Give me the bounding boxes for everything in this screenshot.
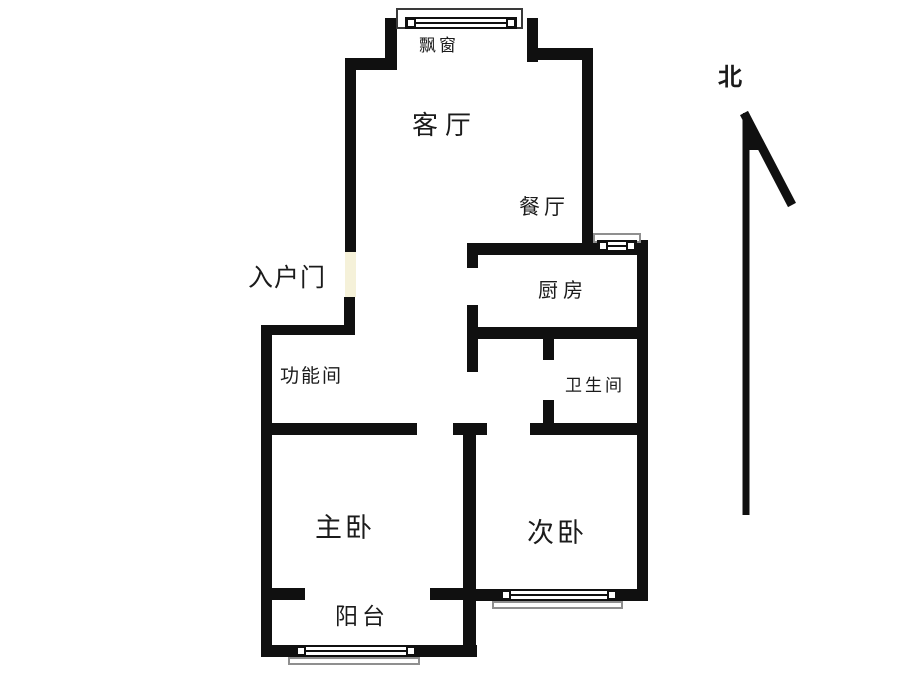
window-cap [501,590,511,600]
room-label-kitchen: 厨房 [538,281,588,301]
room-label-entrance-door: 入户门 [248,266,326,291]
wall [582,48,593,255]
room-label-bay-window: 飘窗 [419,37,459,54]
balcony-window-sill [288,657,420,665]
compass-north-label: 北 [718,66,742,90]
second-bedroom-window [500,589,618,601]
room-label-master-bedroom: 主卧 [315,515,375,542]
wall [637,240,648,601]
window-cap [406,646,416,656]
floor-plan: 飘窗 客厅 餐厅 入户门 厨房 功能间 卫生间 主卧 次卧 阳台 北 [0,0,900,675]
wall [543,339,554,360]
room-label-bathroom: 卫生间 [565,377,625,394]
window-cap [506,18,516,28]
window-cap [607,590,617,600]
wall [270,423,417,435]
balcony-window [295,645,417,657]
window-glass-line [502,594,616,596]
wall [543,400,554,425]
window-glass-line [407,22,515,24]
window-cap [296,646,306,656]
room-label-living-room: 客厅 [412,113,478,139]
window-cap [598,241,608,251]
wall [261,325,272,657]
kitchen-window [597,240,637,252]
room-label-utility-room: 功能间 [280,367,343,386]
bay-window [405,17,517,29]
window-cap [626,241,636,251]
window-cap [406,18,416,28]
room-label-dining-room: 餐厅 [519,197,569,218]
room-label-balcony: 阳台 [335,605,389,628]
wall [463,423,476,657]
window-glass-line [297,650,415,652]
wall [265,588,305,600]
entrance-door-gap [345,252,356,297]
wall [467,327,648,339]
north-arrow-icon [735,105,805,525]
room-label-second-bedroom: 次卧 [527,520,587,547]
wall [530,423,648,435]
second-bedroom-window-sill [492,601,623,609]
wall [345,58,356,252]
wall [467,243,478,268]
wall [261,325,354,335]
